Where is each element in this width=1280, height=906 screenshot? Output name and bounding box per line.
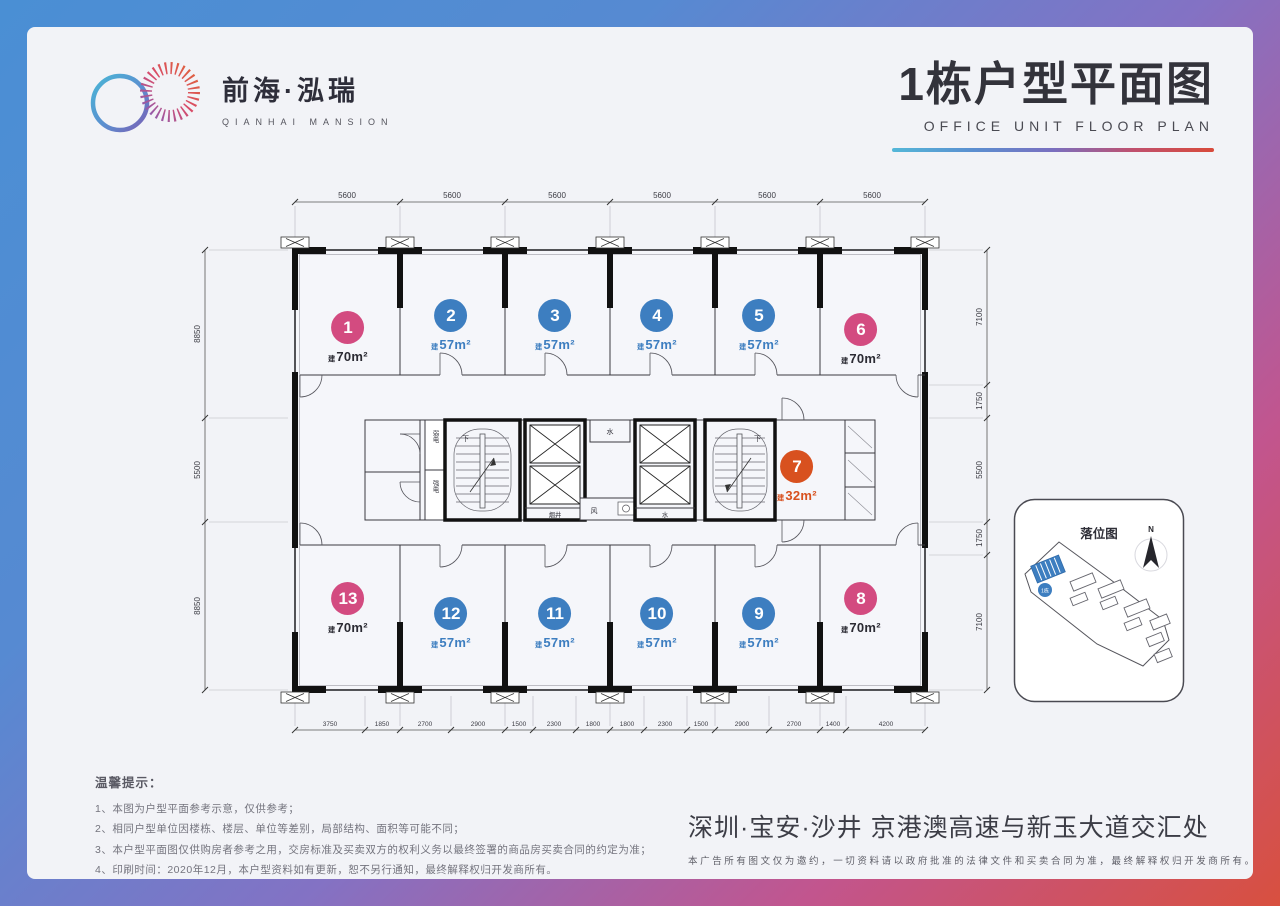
unit-badge-11: 11建57m²	[535, 597, 575, 650]
unit-number: 7	[781, 450, 814, 483]
unit-badge-2: 2建57m²	[431, 299, 471, 352]
dim-label: 2900	[735, 721, 750, 728]
unit-area: 建32m²	[777, 488, 817, 503]
room-label-air: 风	[591, 507, 598, 515]
unit-number: 5	[743, 299, 776, 332]
dim-label: 5500	[975, 461, 984, 479]
unit-number: 10	[641, 597, 674, 630]
unit-badge-9: 9建57m²	[739, 597, 779, 650]
unit-area: 建57m²	[431, 337, 471, 352]
unit-number: 4	[641, 299, 674, 332]
dim-label: 1750	[975, 529, 984, 547]
unit-badge-7: 7建32m²	[777, 450, 817, 503]
footer-block: 深圳·宝安·沙井 京港澳高速与新玉大道交汇处 本广告所有图文仅为邀约，一切资料请…	[688, 808, 1193, 867]
note-item: 1、本图为户型平面参考示意，仅供参考；	[95, 799, 651, 819]
unit-number: 12	[435, 597, 468, 630]
notes-block: 温馨提示： 1、本图为户型平面参考示意，仅供参考； 2、相同户型单位因楼栋、楼层…	[95, 772, 651, 881]
unit-area: 建70m²	[328, 620, 368, 635]
dim-label: 4200	[879, 721, 894, 728]
unit-area: 建57m²	[535, 635, 575, 650]
dim-label: 1500	[694, 721, 709, 728]
unit-area: 建57m²	[739, 337, 779, 352]
unit-badge-5: 5建57m²	[739, 299, 779, 352]
dim-label: 8850	[193, 597, 202, 615]
unit-area: 建57m²	[535, 337, 575, 352]
dim-label: 1400	[826, 721, 841, 728]
dim-label: 2700	[418, 721, 433, 728]
dim-label: 2300	[547, 721, 562, 728]
unit-badge-12: 12建57m²	[431, 597, 471, 650]
unit-badge-1: 1建70m²	[328, 311, 368, 364]
dimension-lines-top: 5600 5600 5600 5600 5600 5600	[292, 191, 928, 244]
unit-area: 建57m²	[431, 635, 471, 650]
unit-badge-10: 10建57m²	[637, 597, 677, 650]
power-shafts: 弱电 强电	[425, 420, 445, 520]
right-shafts	[845, 420, 875, 520]
location-inset-svg: 落位图 N	[1013, 498, 1185, 703]
poster-frame: 前海·泓瑞 QIANHAI MANSION 1栋户型平面图 OFFICE UNI…	[0, 0, 1280, 906]
dim-label: 8850	[193, 325, 202, 343]
logo-name-cn: 前海·泓瑞	[222, 69, 394, 108]
unit-area: 建70m²	[841, 351, 881, 366]
dim-label: 5600	[653, 191, 671, 200]
dim-label: 3750	[323, 721, 338, 728]
unit-area: 建70m²	[328, 349, 368, 364]
dim-label: 5600	[443, 191, 461, 200]
room-label-smoke-shaft: 烟井	[549, 510, 562, 519]
unit-number: 13	[332, 582, 365, 615]
notes-title: 温馨提示：	[95, 772, 651, 791]
page-title: 1栋户型平面图	[892, 48, 1214, 114]
note-item: 2、相同户型单位因楼栋、楼层、单位等差别，局部结构、面积等可能不同；	[95, 819, 651, 839]
logo-name-en: QIANHAI MANSION	[222, 117, 394, 127]
inset-title: 落位图	[1080, 526, 1118, 541]
dim-label: 1800	[586, 721, 601, 728]
floor-plan-svg: 5600 5600 5600 5600 5600 5600	[182, 182, 1012, 762]
room-label-water: 水	[662, 510, 669, 519]
dim-label: 5600	[548, 191, 566, 200]
unit-area: 建57m²	[739, 635, 779, 650]
logo-rings-icon	[78, 50, 206, 146]
unit-area: 建57m²	[637, 635, 677, 650]
footer-disclaimer: 本广告所有图文仅为邀约，一切资料请以政府批准的法律文件和买卖合同为准，最终解释权…	[688, 853, 1193, 867]
dim-label: 5600	[863, 191, 881, 200]
unit-number: 9	[743, 597, 776, 630]
unit-number: 1	[332, 311, 365, 344]
unit-badge-3: 3建57m²	[535, 299, 575, 352]
page-title-block: 1栋户型平面图 OFFICE UNIT FLOOR PLAN	[892, 48, 1214, 152]
brand-logo: 前海·泓瑞 QIANHAI MANSION	[78, 50, 394, 146]
location-slogan: 深圳·宝安·沙井 京港澳高速与新玉大道交汇处	[688, 808, 1193, 844]
room-label-weak-power: 弱电	[432, 430, 439, 443]
dim-label: 2700	[787, 721, 802, 728]
unit-number: 6	[845, 313, 878, 346]
air-room: 风	[580, 498, 640, 520]
unit-number: 2	[435, 299, 468, 332]
room-label-stair-down: 下	[462, 435, 469, 443]
note-item: 4、印刷时间：2020年12月，本户型资料如有更新，恕不另行通知，最终解释权归开…	[95, 860, 651, 880]
unit-badge-6: 6建70m²	[841, 313, 881, 366]
note-item: 3、本户型平面图仅供购房者参考之用，交房标准及买卖双方的权利义务以最终签署的商品…	[95, 840, 651, 860]
title-gradient-bar	[892, 148, 1214, 152]
page-subtitle: OFFICE UNIT FLOOR PLAN	[892, 118, 1214, 134]
dim-label: 5600	[338, 191, 356, 200]
unit-badge-13: 13建70m²	[328, 582, 368, 635]
room-label-stair-down: 下	[754, 435, 761, 443]
unit-badge-8: 8建70m²	[841, 582, 881, 635]
dim-label: 5600	[758, 191, 776, 200]
elevator-bank-a: 烟井	[525, 420, 585, 520]
room-label-water: 水	[607, 427, 614, 436]
dimension-lines-right: 7100 1750 5500 1750 7100	[929, 247, 990, 693]
dim-label: 1750	[975, 392, 984, 410]
stairwell-1: 下	[445, 420, 520, 520]
unit-number: 3	[539, 299, 572, 332]
building-1-label: 1栋	[1041, 588, 1049, 595]
unit-badge-4: 4建57m²	[637, 299, 677, 352]
dim-label: 1850	[375, 721, 390, 728]
unit-area: 建57m²	[637, 337, 677, 352]
unit-number: 8	[845, 582, 878, 615]
unit-area: 建70m²	[841, 620, 881, 635]
dim-label: 1500	[512, 721, 527, 728]
dim-label: 2300	[658, 721, 673, 728]
water-room-top: 水	[590, 420, 630, 442]
stairwell-2: 下	[705, 420, 775, 520]
elevator-bank-b: 水	[635, 420, 695, 520]
room-label-strong-power: 强电	[432, 480, 439, 493]
dim-label: 5500	[193, 461, 202, 479]
dim-label: 2900	[471, 721, 486, 728]
unit-number: 11	[539, 597, 572, 630]
north-label: N	[1148, 525, 1154, 534]
dim-label: 7100	[975, 613, 984, 631]
dimension-lines-left: 8850 5500 8850	[193, 247, 288, 693]
location-inset: 落位图 N	[1013, 498, 1185, 703]
dim-label: 1800	[620, 721, 635, 728]
dim-label: 7100	[975, 308, 984, 326]
floor-plan: 5600 5600 5600 5600 5600 5600	[182, 182, 1012, 762]
